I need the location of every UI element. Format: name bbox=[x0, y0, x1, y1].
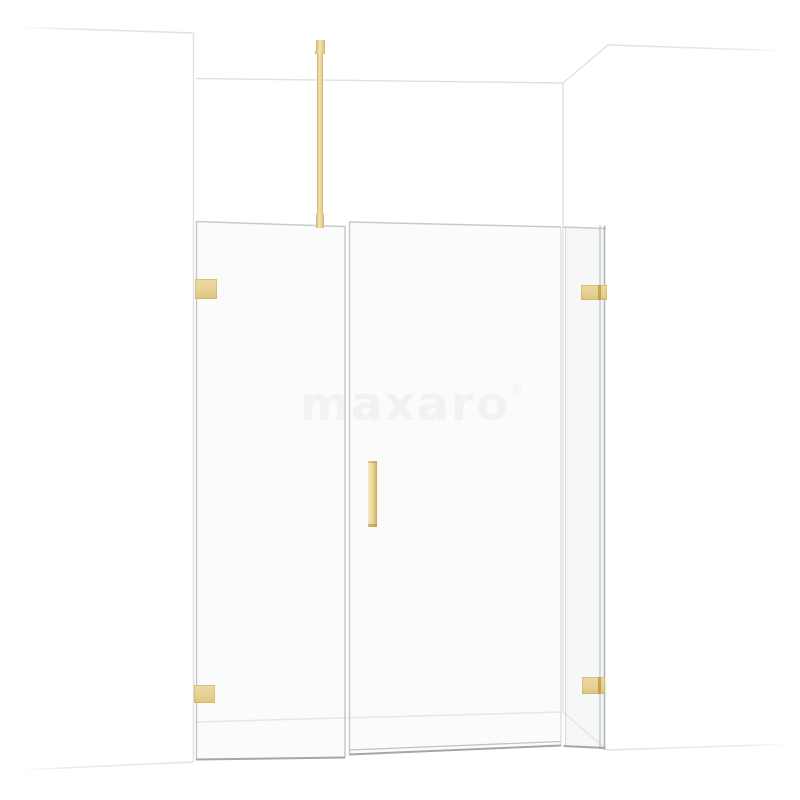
wall-bracket-bottom-left bbox=[194, 685, 216, 703]
right-wall-top-edge bbox=[608, 45, 788, 51]
door-glass-panel bbox=[349, 222, 561, 755]
right-fixed-glass-panel bbox=[565, 227, 604, 748]
stabilizer-bar-glass-clamp bbox=[316, 214, 324, 229]
left-wall-floor-edge bbox=[18, 762, 193, 770]
bracket-clamp-seam bbox=[598, 677, 601, 694]
door-handle bbox=[368, 461, 377, 527]
shower-door-product-image: maxaro® bbox=[0, 0, 800, 800]
back-wall-top-edge bbox=[196, 79, 563, 84]
bracket-clamp-seam bbox=[598, 285, 601, 300]
right-wall-floor-edge bbox=[607, 744, 795, 750]
room-and-glass-linework bbox=[0, 0, 800, 800]
wall-bracket-top-left bbox=[195, 279, 217, 299]
right-wall-upper-diagonal-edge bbox=[563, 45, 608, 83]
left-wall-top-edge bbox=[14, 27, 193, 33]
wall-bracket-bottom-right bbox=[582, 677, 606, 694]
stabilizer-bar-rod bbox=[317, 54, 322, 214]
stabilizer-bar-ceiling-cap bbox=[316, 40, 325, 51]
wall-bracket-top-right bbox=[581, 285, 607, 300]
left-fixed-glass-panel bbox=[196, 221, 345, 760]
